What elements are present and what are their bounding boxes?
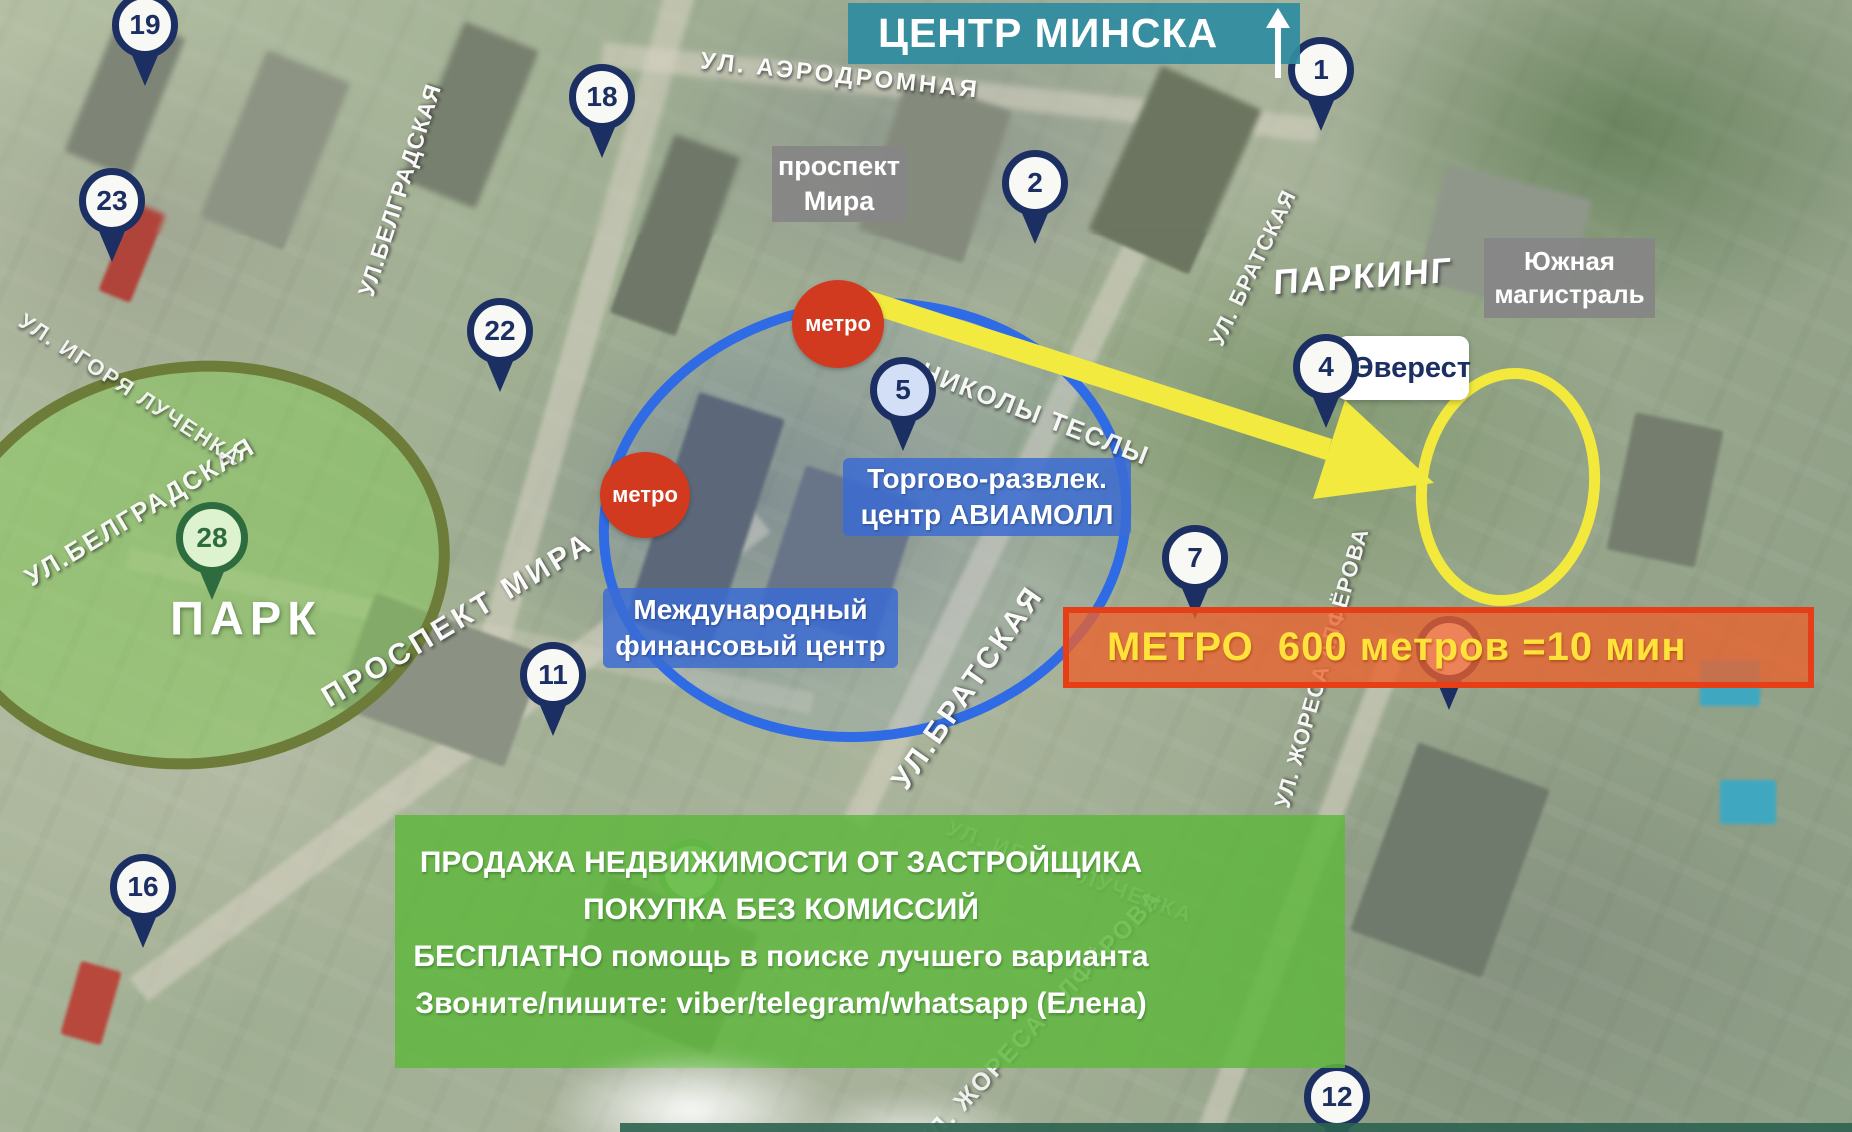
yuzhnaya-magistral-label: Южная магистраль	[1484, 238, 1655, 318]
aerial-map-promo: УЛ. АЭРОДРОМНАЯУЛ.БЕЛГРАДСКАЯУЛ.БЕЛГРАДС…	[0, 0, 1852, 1132]
mfc-line1: Международный	[633, 592, 867, 628]
metro-distance-text: МЕТРО 600 метров =10 мин	[1069, 625, 1687, 670]
metro-distance-banner: МЕТРО 600 метров =10 мин	[1063, 607, 1814, 688]
aviamall-line1: Торгово-развлек.	[867, 461, 1107, 497]
everest-text: Эверест	[1353, 352, 1471, 385]
metro-badge-text: метро	[612, 482, 678, 508]
aviamall-line2: центр АВИАМОЛЛ	[861, 497, 1114, 533]
everest-label: Эверест	[1337, 336, 1469, 400]
metro-station-badge: метро	[600, 452, 690, 538]
ad-banner: ПРОДАЖА НЕДВИЖИМОСТИ ОТ ЗАСТРОЙЩИКА ПОКУ…	[395, 815, 1345, 1068]
yuzhnaya-line2: магистраль	[1494, 278, 1644, 311]
park-label: ПАРК	[170, 591, 322, 646]
park-text: ПАРК	[170, 592, 322, 645]
ad-line4: Звоните/пишите: viber/telegram/whatsapp …	[400, 980, 1162, 1027]
yuzhnaya-line1: Южная	[1524, 245, 1615, 278]
aviamall-label: Торгово-развлек. центр АВИАМОЛЛ	[843, 458, 1131, 536]
ad-line3: БЕСПЛАТНО помощь в поиске лучшего вариан…	[400, 933, 1162, 980]
metro-station-badge: метро	[792, 280, 884, 368]
prospekt-mira-label: проспект Мира	[772, 146, 906, 222]
route-arrow-head	[1313, 400, 1434, 499]
title-banner: ЦЕНТР МИНСКА	[848, 3, 1300, 64]
ad-line2: ПОКУПКА БЕЗ КОМИССИЙ	[400, 886, 1162, 933]
ad-banner-lines: ПРОДАЖА НЕДВИЖИМОСТИ ОТ ЗАСТРОЙЩИКА ПОКУ…	[400, 839, 1162, 1027]
title-text: ЦЕНТР МИНСКА	[878, 10, 1218, 57]
mfc-line2: финансовый центр	[615, 628, 885, 664]
ad-line1: ПРОДАЖА НЕДВИЖИМОСТИ ОТ ЗАСТРОЙЩИКА	[400, 839, 1162, 886]
prospekt-mira-line2: Мира	[804, 184, 875, 219]
bottom-edge-strip	[620, 1123, 1852, 1132]
prospekt-mira-line1: проспект	[778, 149, 900, 184]
north-arrow-icon	[1266, 8, 1290, 78]
metro-badge-text: метро	[805, 311, 871, 337]
park-highlight-ellipse	[0, 338, 467, 792]
financial-center-label: Международный финансовый центр	[603, 588, 898, 668]
